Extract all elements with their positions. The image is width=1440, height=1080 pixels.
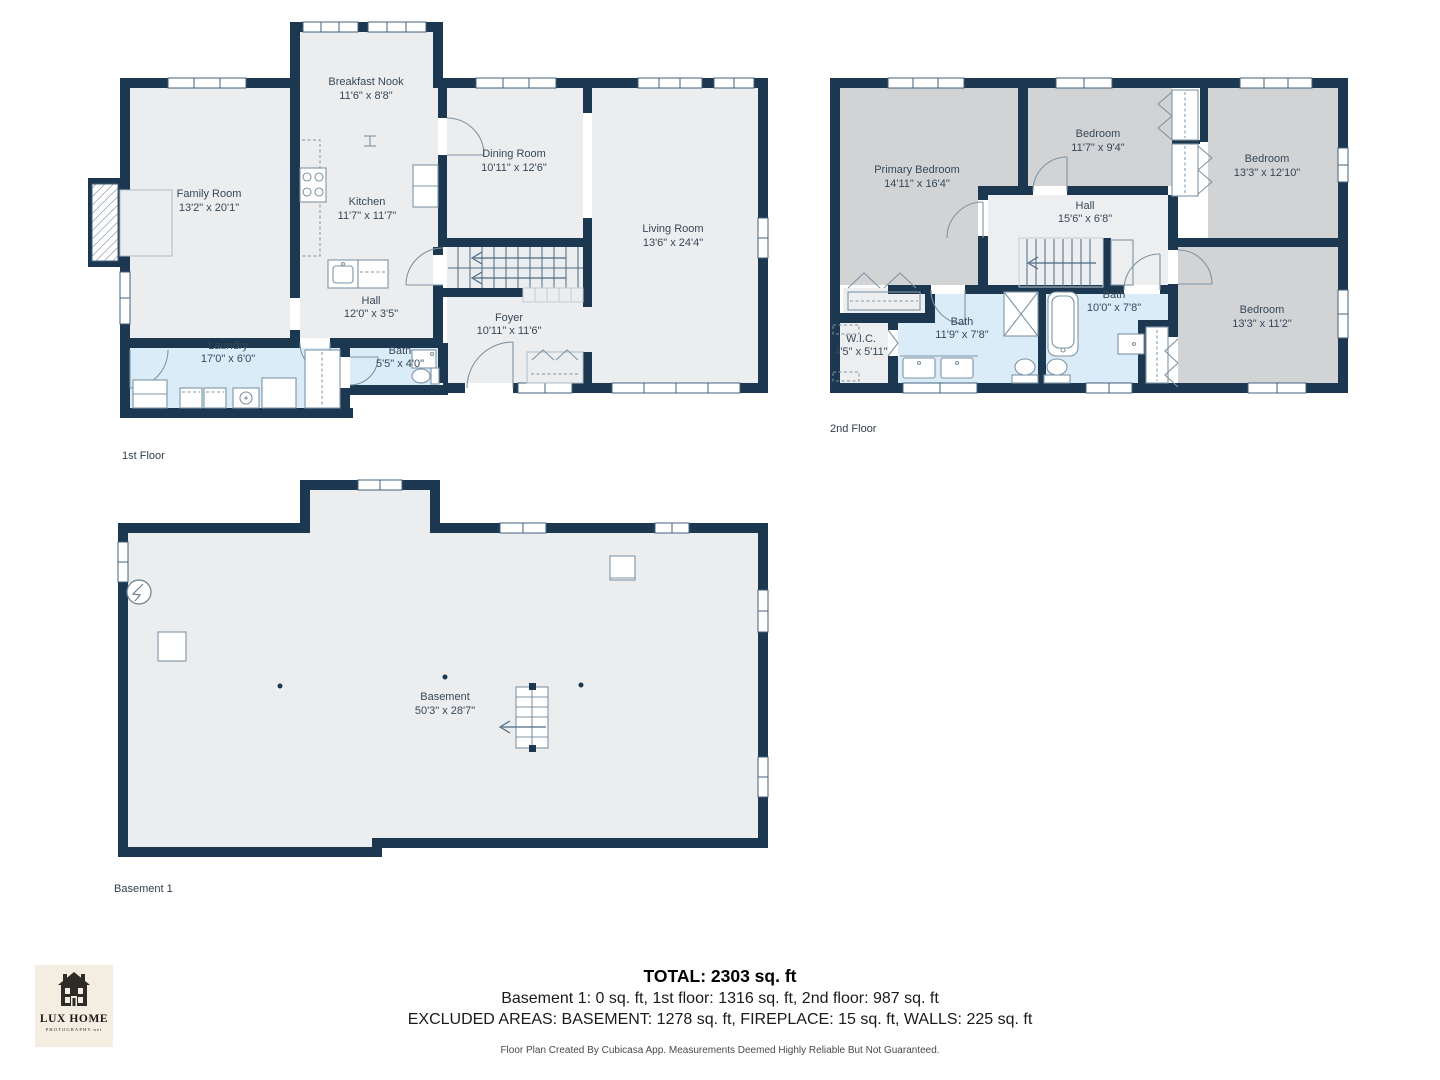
- room-dims-primary-bedroom: 14'11" x 16'4": [884, 178, 950, 190]
- sink-icon: [1118, 334, 1144, 354]
- room-dims-foyer: 10'11" x 11'6": [477, 325, 542, 337]
- room-dims-hall: 15'6" x 6'8": [1058, 213, 1112, 225]
- room-label-family-room: Family Room: [177, 188, 242, 200]
- closet: [262, 378, 296, 408]
- first-floor-plan: Family Room 13'2" x 20'1" Breakfast Nook…: [85, 10, 790, 470]
- room-dims-family-room: 13'2" x 20'1": [179, 202, 239, 214]
- fridge-icon: [413, 165, 438, 207]
- room-label-primary-bedroom: Primary Bedroom: [874, 164, 960, 176]
- room-dims-bedroom-2: 13'3" x 12'10": [1234, 167, 1301, 179]
- sink-icon: [903, 358, 935, 378]
- floor-label-2nd: 2nd Floor: [830, 423, 877, 435]
- room-dims-hall: 12'0" x 3'5": [344, 308, 398, 320]
- room-label-dining-room: Dining Room: [482, 148, 546, 160]
- room-dims-kitchen: 11'7" x 11'7": [338, 210, 397, 222]
- room-dims-laundry: 17'0" x 6'0": [201, 353, 255, 365]
- kitchen-sink-icon: [328, 260, 358, 288]
- room-dims-living-room: 13'6" x 24'4": [643, 237, 703, 249]
- electrical-panel-icon: [127, 580, 151, 604]
- second-floor-plan: Primary Bedroom 14'11" x 16'4" Bedroom 1…: [820, 70, 1360, 445]
- room-dims-bedroom-1: 11'7" x 9'4": [1071, 142, 1124, 154]
- room-label-bath: Bath: [389, 345, 412, 357]
- floor-areas: Basement 1: 0 sq. ft, 1st floor: 1316 sq…: [0, 990, 1440, 1008]
- fireplace-icon: [88, 178, 172, 267]
- room-dims-bath-1: 11'9" x 7'8": [935, 329, 988, 341]
- cabinet-icon: [133, 380, 167, 408]
- dryer-icon: [180, 388, 202, 408]
- room-label-wic: W.I.C.: [846, 333, 876, 345]
- room-label-bedroom-2: Bedroom: [1245, 153, 1290, 165]
- pantry: [305, 350, 340, 408]
- room-fills: [128, 490, 758, 847]
- room-label-basement: Basement: [420, 691, 470, 703]
- floor-label-1st: 1st Floor: [122, 450, 165, 462]
- room-label-kitchen: Kitchen: [349, 196, 386, 208]
- room-label-hall: Hall: [362, 295, 381, 307]
- shower-icon: [1004, 292, 1038, 336]
- room-label-foyer: Foyer: [495, 312, 523, 324]
- sink-icon: [941, 358, 973, 378]
- basement-floor-plan: Basement 50'3" x 28'7" Basement 1: [110, 475, 775, 900]
- room-label-breakfast-nook: Breakfast Nook: [328, 76, 404, 88]
- area-summary: TOTAL: 2303 sq. ft Basement 1: 0 sq. ft,…: [0, 966, 1440, 1029]
- excluded-areas: EXCLUDED AREAS: BASEMENT: 1278 sq. ft, F…: [0, 1011, 1440, 1029]
- total-area: TOTAL: 2303 sq. ft: [0, 966, 1440, 987]
- floor-label-basement: Basement 1: [114, 883, 173, 895]
- room-label-bedroom-3: Bedroom: [1240, 304, 1285, 316]
- foyer-closet: [527, 350, 583, 383]
- room-label-bath-1: Bath: [951, 316, 974, 328]
- room-dims-wic: 4'5" x 5'11": [834, 346, 887, 358]
- stove-icon: [300, 168, 326, 202]
- room-dims-breakfast-nook: 11'6" x 8'8": [339, 90, 392, 102]
- room-dims-bath: 5'5" x 4'0": [376, 358, 424, 370]
- bathtub-icon: [1048, 292, 1078, 356]
- room-label-bath-2: Bath: [1103, 289, 1126, 301]
- room-dims-dining-room: 10'11" x 12'6": [481, 162, 547, 174]
- toilet-icon: [412, 368, 439, 384]
- dishwasher-icon: [358, 260, 388, 288]
- dryer-icon: [204, 388, 226, 408]
- disclaimer: Floor Plan Created By Cubicasa App. Meas…: [0, 1045, 1440, 1056]
- washer-icon: [233, 388, 259, 408]
- room-label-bedroom-1: Bedroom: [1076, 128, 1121, 140]
- room-label-hall: Hall: [1076, 200, 1095, 212]
- room-label-laundry: Laundry: [208, 340, 248, 352]
- room-dims-bath-2: 10'0" x 7'8": [1087, 302, 1141, 314]
- room-dims-basement: 50'3" x 28'7": [415, 705, 475, 717]
- room-label-living-room: Living Room: [642, 223, 703, 235]
- room-dims-bedroom-3: 13'3" x 11'2": [1232, 318, 1292, 330]
